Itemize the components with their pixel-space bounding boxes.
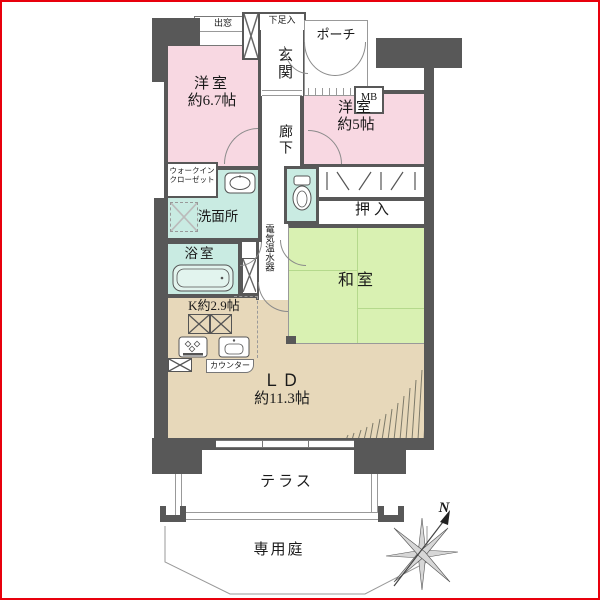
washitsu-label: 和室 [312,272,402,290]
terrace-label: テラス [232,474,342,491]
entrance-step-line [262,90,302,91]
bathtub-icon [172,264,234,292]
window-tick [308,441,309,447]
kitchen-label: K約2.9帖 [170,299,258,314]
window-tick [262,441,263,447]
western1-size: 約6.7帖 [162,93,262,110]
tatami-line [289,270,357,271]
closet-hanger-marks [319,167,429,195]
compass-north-label: N [434,500,454,517]
fence-bracket-left [160,506,186,522]
floor-plan: 押入 ウォークイン クローゼット 出窓 下足入 玄関 ポーチ MB 洋室 約6.… [0,0,600,600]
kitchen-dashed-line [257,296,258,358]
wic-label: ウォークイン クローゼット [168,167,216,184]
x-mark-icon [169,359,191,371]
bay-window-label: 出窓 [198,18,248,28]
kitchen-sink-icon [218,336,250,358]
ld-label: ＬＤ 約11.3帖 [227,371,337,408]
washitsu-corner-nub [286,336,296,344]
western2-label: 洋室 約5帖 [302,100,410,135]
kitchen-dashed-line [234,296,258,297]
corridor-label: 廊下 [270,114,292,166]
wall-left-upper [152,18,168,82]
oshiire-label: 押入 [332,202,416,219]
western1-label: 洋室 約6.7帖 [162,76,262,111]
storage-x-box [188,314,210,334]
toilet-icon [290,174,314,214]
tatami-line [357,308,428,309]
pillar-bottom-right [354,438,406,474]
shoe-cabinet-label: 下足入 [260,15,304,25]
ld-size: 約11.3帖 [227,391,337,408]
ld-corner-hatch [340,356,428,440]
stove-icon [178,336,208,358]
garden-label: 専用庭 [229,542,329,559]
pillar-bottom-left [152,438,202,474]
terrace-fence [186,512,378,520]
closet-hanger [316,164,432,200]
x-mark-icon [189,315,209,333]
wall-right [424,62,434,444]
porch-label: ポーチ [306,28,366,43]
washing-machine-space [170,202,198,232]
hatch-x-box [168,358,192,372]
terrace-rail-right [371,474,378,516]
window-bottom [216,440,356,448]
bathroom-label: 浴室 [172,246,228,262]
pillar-top-right [376,38,462,68]
washbasin-icon [224,172,256,194]
western1-name: 洋室 [162,76,262,93]
wic-label-line2: クローゼット [168,176,216,185]
wall-left-lower [154,198,168,446]
x-mark-icon [171,203,197,231]
western2-name: 洋室 [302,100,410,117]
x-mark-icon [244,14,258,58]
counter-label: カウンター [208,361,252,370]
entrance-step-line [262,95,302,96]
x-mark-icon [211,315,231,333]
ld-name: ＬＤ [227,371,337,391]
storage-x-box [210,314,232,334]
